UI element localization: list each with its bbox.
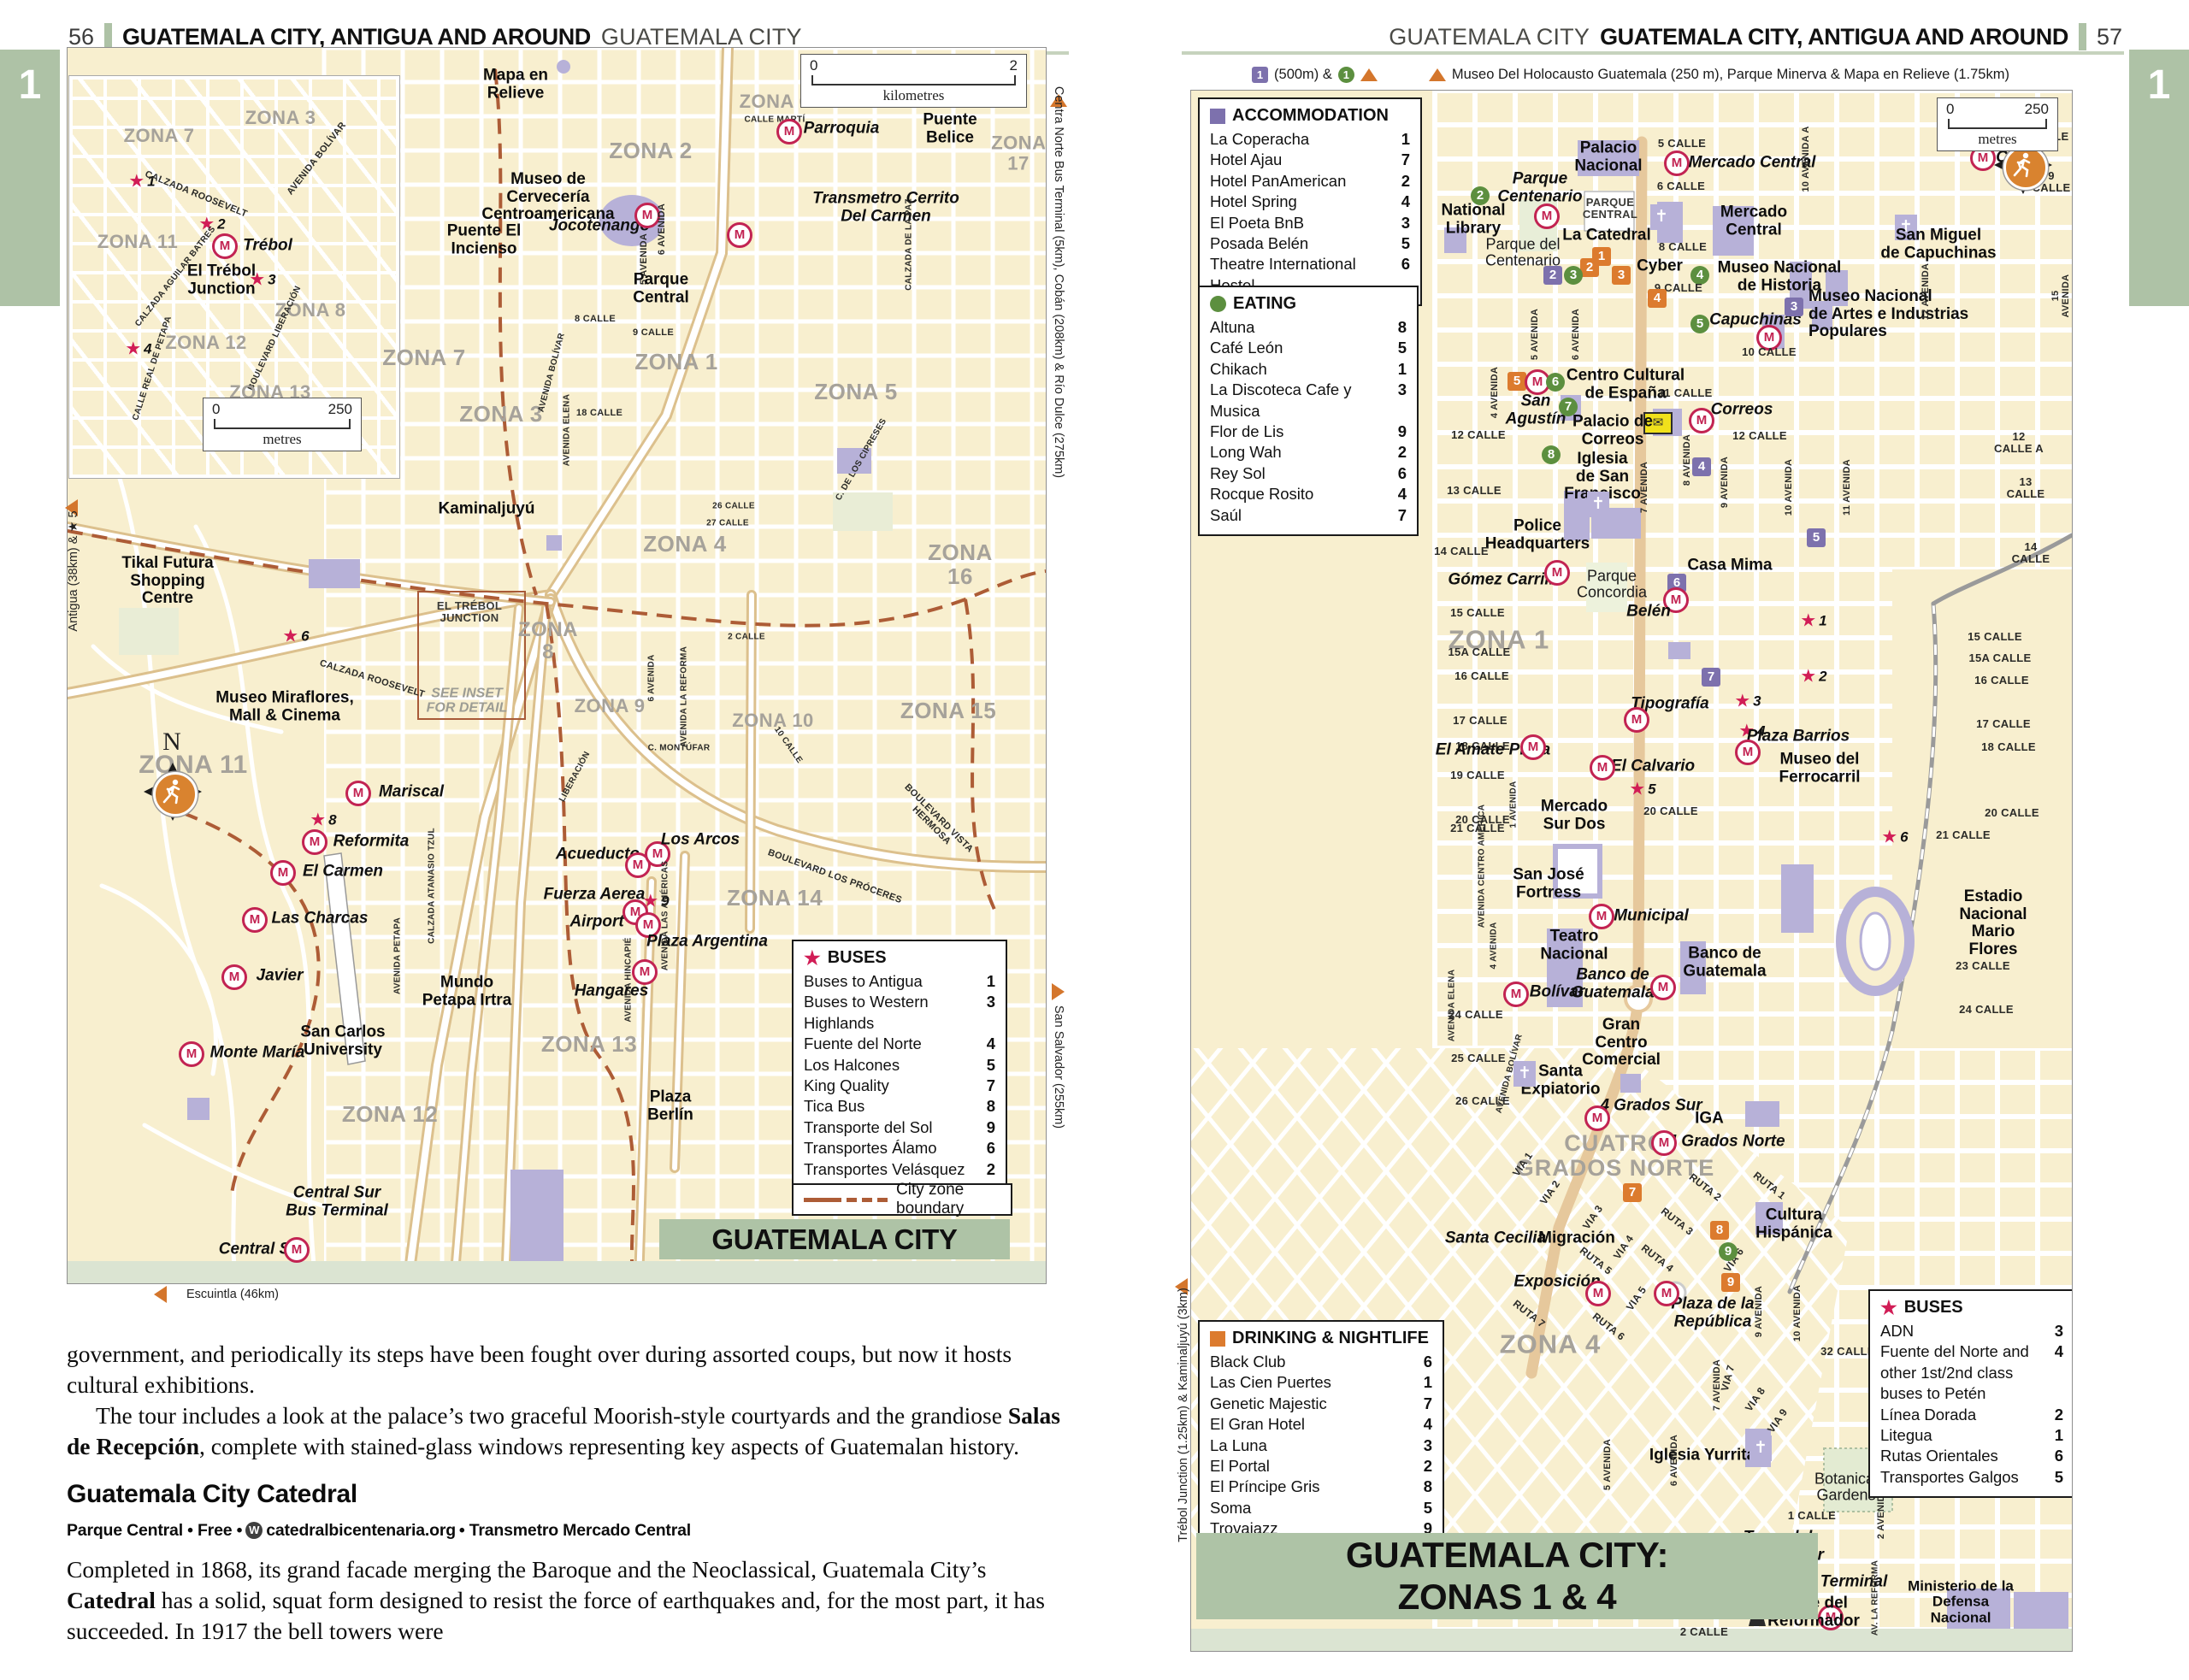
accommodation-number-badge: 5 — [1807, 528, 1826, 547]
legend-row: Hotel PanAmerican2 — [1210, 171, 1410, 192]
metro-station-icon: M — [302, 829, 327, 855]
map-label: AVENIDA CENTRO AMÉRICA — [1478, 805, 1488, 928]
map-label: Santa Cecilia — [1445, 1230, 1546, 1248]
map-label: Iglesia Yurrita — [1649, 1447, 1755, 1465]
map-label: San Agustín — [1506, 392, 1567, 427]
map-label: National Library — [1442, 202, 1506, 237]
metro-station-icon: M — [1589, 904, 1614, 929]
map-label: AV. LA REFORMA — [1872, 1560, 1881, 1636]
bus-star-icon: ★ — [1880, 1300, 1897, 1316]
map-label: AVENIDA ELENA — [1449, 970, 1458, 1041]
church-icon: ✝ — [1587, 492, 1609, 517]
metro-station-icon: M — [776, 119, 802, 144]
legend-row: Hotel Ajau7 — [1210, 150, 1410, 170]
metro-station-icon: M — [242, 907, 268, 933]
map-label: Gran Centro Comercial — [1582, 1017, 1661, 1070]
accommodation-number-badge: 2 — [1543, 266, 1562, 285]
map-label: ZONA 6 — [740, 91, 811, 112]
church-icon: ✝ — [1749, 1435, 1772, 1461]
map-title: GUATEMALA CITY — [659, 1219, 1010, 1259]
map-label: San José Fortress — [1513, 866, 1584, 901]
map-label: Parque Central — [633, 271, 688, 306]
map-label: 12 CALLE — [1732, 430, 1787, 442]
chapter-title: GUATEMALA CITY, ANTIGUA AND AROUND — [1600, 24, 2068, 50]
map-label: Mariscal — [379, 784, 444, 802]
map-label: Hangares — [575, 983, 649, 1001]
legend-row: La Luna3 — [1210, 1435, 1432, 1456]
website-icon: W — [245, 1522, 263, 1539]
boundary-line-sample — [804, 1198, 888, 1202]
eating-swatch-icon — [1210, 296, 1226, 312]
nightlife-number-badge: 2 — [1580, 258, 1599, 277]
buses-legend-list: Buses to Antigua1 Buses to Western Highl… — [804, 971, 995, 1180]
map-label: La Catedral — [1562, 227, 1650, 245]
chapter-tab-left: 1 — [0, 50, 60, 306]
metro-station-icon: M — [221, 964, 247, 990]
map-label: Las Charcas — [271, 911, 368, 928]
section-title: GUATEMALA CITY — [601, 24, 802, 50]
legend-row: Saúl7 — [1210, 505, 1407, 526]
map-label: Palacio de Correos — [1572, 413, 1653, 448]
map-label: 15 CALLE — [1450, 607, 1505, 619]
map-label: Mercado Sur Dos — [1541, 798, 1608, 833]
map-label: Central Sur Bus Terminal — [286, 1184, 388, 1219]
map-label: 7 AVENIDA — [1713, 1359, 1723, 1411]
legend-row: Tica Bus8 — [804, 1096, 995, 1117]
compass-icon — [149, 768, 197, 816]
buses-legend: ★BUSES ADN3 Fuente del Norte and other 1… — [1868, 1289, 2073, 1498]
legend-row: Buses to Antigua1 — [804, 971, 995, 992]
legend-row: Buses to Western Highlands3 — [804, 992, 995, 1034]
map-label: PARQUE CENTRAL — [1583, 197, 1637, 221]
nightlife-number-badge: 7 — [1623, 1183, 1642, 1202]
map-label: 11 CALLE — [1658, 387, 1712, 399]
bus-stop-star-icon: ★3 — [1734, 693, 1761, 712]
map-label: Plaza de la República — [1671, 1295, 1754, 1330]
eating-number-badge: 3 — [1564, 266, 1583, 285]
bus-stop-star-icon: ★2 — [1800, 668, 1826, 687]
map-label: IGA — [1695, 1111, 1724, 1129]
offmap-distance-label: San Salvador (255km) — [1052, 1005, 1065, 1129]
legend-row: Rocque Rosito4 — [1210, 484, 1407, 504]
map-label: Police Headquarters — [1485, 517, 1590, 552]
map-label: Parque del Centenario — [1485, 237, 1561, 270]
map-label: 17 CALLE — [1976, 718, 2031, 730]
map-label: Ministerio de la Defensa Nacional — [1905, 1578, 2016, 1625]
map-label: ZONA 14 — [727, 886, 823, 910]
map-label: 12 CALLE A — [1992, 431, 2045, 455]
header-accent-bar — [2079, 23, 2086, 50]
map-label: Reformita — [333, 834, 410, 852]
article-heading: Guatemala City Catedral — [67, 1479, 1081, 1510]
map-label: 4 Grados Norte — [1667, 1134, 1785, 1152]
map-label: 16 CALLE — [1974, 675, 2029, 687]
header-rule-right — [1182, 51, 2124, 55]
direction-arrow-icon — [1052, 983, 1065, 1000]
map-label: AVENIDA LA REFORMA — [681, 646, 690, 747]
drinking-list: Black Club6 Las Cien Puertes1 Genetic Ma… — [1210, 1352, 1432, 1540]
map-label: ZONA 3 — [245, 108, 316, 128]
legend-row: Transportes Galgos5 — [1880, 1467, 2063, 1488]
map-label: 6 AVENIDA — [1670, 1435, 1680, 1486]
inset-scale-bar: 0250 metres — [203, 398, 362, 451]
legend-row: La Coperacha1 — [1210, 129, 1410, 150]
metro-station-icon: M — [1534, 203, 1560, 229]
map-label: 15A CALLE — [1968, 652, 2031, 664]
nightlife-number-badge: 5 — [1508, 372, 1526, 391]
map-title: GUATEMALA CITY: ZONAS 1 & 4 — [1196, 1533, 1818, 1619]
map-label: Airport — [569, 914, 623, 932]
map-label: ZONA 7 — [124, 126, 195, 146]
legend-row: Chikach1 — [1210, 359, 1407, 380]
eating-number-badge: 5 — [1690, 315, 1709, 333]
metro-station-icon: M — [632, 959, 658, 985]
legend-row: Transporte del Sol9 — [804, 1117, 995, 1138]
metro-station-icon: M — [1520, 734, 1546, 760]
metro-station-icon: M — [212, 233, 238, 259]
map-label: 2 CALLE — [1680, 1626, 1728, 1638]
metro-station-icon: M — [1544, 560, 1570, 586]
bus-star-icon: ★ — [804, 951, 821, 966]
map-label: 23 CALLE — [1956, 960, 2010, 972]
map-bottom-strip — [1191, 1629, 2072, 1651]
map-label: San Carlos University — [300, 1023, 385, 1058]
map-label: 13 CALLE — [1447, 485, 1502, 497]
legend-row: Hotel Spring4 — [1210, 192, 1410, 212]
metro-station-icon: M — [284, 1237, 310, 1263]
map-label: ZONA 7 — [382, 345, 465, 369]
map-label: AVENIDA LAS AMÉRICAS — [662, 861, 671, 970]
map-label: Museo del Ferrocarril — [1779, 751, 1860, 786]
page-number: 57 — [2097, 24, 2122, 50]
metro-station-icon: M — [1503, 981, 1529, 1007]
accommodation-number-badge: 7 — [1702, 668, 1720, 687]
map-label: Belén — [1626, 604, 1671, 622]
metro-station-icon: M — [1654, 1281, 1679, 1306]
map-label: ZONA 9 — [575, 696, 646, 716]
map-scale-bar: 02 kilometres — [800, 54, 1027, 108]
map-label: 26 CALLE — [712, 503, 755, 512]
map-label: Javier — [257, 968, 304, 986]
article-text: government, and periodically its steps h… — [67, 1339, 1081, 1647]
map-label: 24 CALLE — [1449, 1009, 1503, 1021]
map-scale-bar: 0250 metres — [1937, 97, 2058, 151]
map-label: 5 AVENIDA — [1603, 1439, 1614, 1490]
map-label: 9 AVENIDA — [1755, 1286, 1765, 1337]
map-label: ZONA 2 — [609, 139, 692, 162]
legend-row: Genetic Majestic7 — [1210, 1394, 1432, 1414]
map-label: ZONA 8 — [518, 619, 578, 663]
map-label: Puente El Incienso — [447, 222, 522, 257]
nightlife-number-badge: 9 — [1721, 1273, 1740, 1292]
legend-row: Café León5 — [1210, 338, 1407, 358]
map-label: ZONA 4 — [643, 532, 726, 556]
legend-row: El Portal2 — [1210, 1456, 1432, 1477]
legend-row: El Gran Hotel4 — [1210, 1414, 1432, 1435]
bus-stop-star-icon: ★4 — [125, 340, 151, 360]
map-label: 6 AVENIDA — [658, 203, 668, 255]
accommodation-legend: ACCOMMODATION La Coperacha1 Hotel Ajau7 … — [1198, 97, 1422, 306]
map-label: 8 CALLE — [575, 315, 616, 325]
legend-row: Las Cien Puertes1 — [1210, 1372, 1432, 1393]
legend-row: Transportes Álamo6 — [804, 1138, 995, 1158]
map-label: ZONA 15 — [900, 699, 996, 722]
map-label: 14 CALLE — [2010, 541, 2051, 565]
map-label: 21 CALLE — [1936, 829, 1991, 841]
church-icon: ✝ — [1513, 1061, 1536, 1087]
listing-details: Parque Central • Free • W catedralbicent… — [67, 1515, 1081, 1546]
map-label: 4 AVENIDA — [1490, 923, 1500, 970]
legend-row: Flor de Lis9 — [1210, 421, 1407, 442]
map-label: Monte María — [210, 1045, 305, 1063]
accommodation-badge-icon: 1 — [1252, 67, 1268, 83]
drinking-swatch-icon — [1210, 1331, 1225, 1347]
map-label: 10 CALLE — [1742, 346, 1797, 358]
map-label: 24 CALLE — [1959, 1004, 2014, 1016]
map-label: AVENIDA HINCAPIÉ — [625, 937, 634, 1022]
metro-station-icon: M — [1650, 975, 1676, 1000]
paragraph: government, and periodically its steps h… — [67, 1339, 1081, 1400]
paragraph: The tour includes a look at the palace’s… — [67, 1400, 1081, 1462]
legend-row: Posada Belén5 — [1210, 233, 1410, 254]
eating-badge-icon: 1 — [1338, 67, 1354, 83]
map-label: 20 CALLE — [1985, 807, 2039, 819]
accommodation-number-badge: 4 — [1692, 457, 1711, 476]
map-label: 15 CALLE — [1968, 631, 2022, 643]
nightlife-number-badge: 3 — [1612, 266, 1631, 285]
metro-station-icon: M — [1590, 755, 1615, 781]
legend-row: Black Club6 — [1210, 1352, 1432, 1372]
paragraph: Completed in 1868, its grand facade merg… — [67, 1554, 1081, 1647]
map-label: ZONA 16 — [917, 540, 1003, 588]
map-label: Mundo Petapa Irtra — [422, 974, 512, 1009]
legend-row: Altuna8 — [1210, 317, 1407, 338]
map-label: 15A CALLE — [1448, 646, 1510, 658]
map-label: 7 AVENIDA — [1640, 462, 1650, 513]
map-label: ZONA 17 — [991, 133, 1046, 174]
metro-station-icon: M — [1585, 1281, 1611, 1306]
map-label: CALZADA ATANASIO TZUL — [428, 828, 438, 944]
legend-row: Transportes Velásquez2 — [804, 1159, 995, 1180]
map-label: 10 AVENIDA A — [1802, 126, 1812, 192]
direction-arrow-icon — [1360, 68, 1378, 81]
map-label: ZONA 13 — [541, 1032, 637, 1056]
map-label: 19 CALLE — [1450, 769, 1505, 781]
map-label: 12 AVENIDA — [1921, 263, 1932, 321]
eating-list: Altuna8 Café León5 Chikach1 La Discoteca… — [1210, 317, 1407, 526]
bus-stop-star-icon: ★6 — [282, 628, 309, 647]
map-label: Museo Miraflores, Mall & Cinema — [215, 689, 354, 724]
map-label: AVENIDA ELENA — [563, 394, 573, 466]
map-label: 9 AVENIDA — [1720, 457, 1731, 508]
map-label: Parque Concordia — [1577, 569, 1647, 602]
metro-station-icon: M — [1584, 1105, 1610, 1131]
map-label: Plaza Barrios — [1747, 728, 1850, 746]
metro-station-icon: M — [179, 1041, 204, 1067]
map-label: 32 CALLE — [1820, 1346, 1875, 1358]
bus-stop-star-icon: ★6 — [1881, 828, 1908, 848]
map-label: Puente Belice — [923, 111, 976, 146]
map-label: Trébol — [243, 238, 292, 256]
map-label: Mercado Central — [1689, 155, 1816, 173]
map-label: Tikal Futura Shopping Centre — [121, 555, 213, 608]
map-bottom-strip — [68, 1261, 1046, 1283]
map-label: 5 CALLE — [1658, 138, 1706, 150]
map-label: Mapa en Relieve — [483, 67, 548, 102]
nightlife-number-badge: 4 — [1648, 289, 1667, 308]
map-label: Palacio Nacional — [1574, 139, 1642, 174]
legend-row: ADN3 — [1880, 1321, 2063, 1341]
map-label: ZONA 3 — [459, 402, 542, 426]
page-header-right: GUATEMALA CITY GUATEMALA CITY, ANTIGUA A… — [1389, 22, 2122, 51]
map-label: 10 AVENIDA — [1793, 1285, 1803, 1342]
map-label: Bolívar — [1530, 984, 1584, 1002]
map-label: 15 AVENIDA — [2051, 274, 2072, 318]
map-label: Estadio Nacional Mario Flores — [1954, 888, 2033, 958]
eating-legend: EATING Altuna8 Café León5 Chikach1 La Di… — [1198, 286, 1419, 536]
map-label: 17 CALLE — [1453, 715, 1508, 727]
metro-station-icon: M — [1735, 740, 1761, 765]
map-label: 4 Grados Sur — [1600, 1098, 1702, 1116]
eating-number-badge: 6 — [1546, 373, 1565, 392]
legend-row: El Príncipe Gris8 — [1210, 1477, 1432, 1497]
metro-station-icon: M — [270, 860, 296, 886]
map-label: Los Arcos — [661, 832, 740, 850]
map-label: 9 CALLE — [633, 328, 674, 339]
map-label: Correos — [1711, 402, 1773, 420]
map-label: ZONA 12 — [342, 1102, 438, 1126]
map-label: El Carmen — [303, 864, 383, 881]
map-label: ZONA 12 — [165, 333, 247, 353]
map-label: Parroquia — [804, 121, 880, 139]
buses-list: ADN3 Fuente del Norte and other 1st/2nd … — [1880, 1321, 2063, 1488]
map-label: Migración — [1538, 1230, 1615, 1248]
legend-row: Fuente del Norte and other 1st/2nd class… — [1880, 1341, 2063, 1404]
map-label: 1 CALLE — [1788, 1510, 1836, 1522]
map-label: ZONA 10 — [732, 710, 814, 731]
legend-row: Línea Dorada2 — [1880, 1405, 2063, 1425]
map-label: Cultura Hispánica — [1755, 1206, 1832, 1241]
poi-dot-icon — [557, 60, 570, 74]
map-label: 20 CALLE — [1643, 805, 1698, 817]
direction-arrow-icon — [1429, 68, 1446, 81]
map-label: 5 AVENIDA — [1531, 309, 1541, 360]
bus-stop-star-icon: ★8 — [310, 811, 336, 831]
map-label: 13 CALLE — [2003, 476, 2049, 500]
map-label: Casa Mima — [1687, 557, 1772, 575]
map-label: Banco de Guatemala — [1683, 945, 1766, 980]
legend-row: Rey Sol6 — [1210, 463, 1407, 484]
offmap-distance-label: Trébol Junction (1.25km) & Kaminaljuyú (… — [1177, 1288, 1190, 1542]
legend-row: Litegua1 — [1880, 1425, 2063, 1446]
legend-row: King Quality7 — [804, 1076, 995, 1096]
map-label: ZONA 11 — [97, 232, 178, 252]
map-label: Mercado Central — [1720, 203, 1787, 239]
runner-icon — [2011, 152, 2035, 178]
map-label: ZONA 4 — [1500, 1329, 1602, 1358]
map-label: 6 AVENIDA — [648, 655, 658, 702]
map-label: 8 CALLE — [1659, 241, 1707, 253]
metro-station-icon: M — [345, 781, 371, 806]
page-number: 56 — [68, 24, 94, 50]
map-label: Cyber — [1637, 258, 1683, 276]
bus-stop-star-icon: ★5 — [1629, 781, 1655, 800]
church-icon: ✝ — [1650, 204, 1673, 230]
map-label: 2 CALLE — [728, 634, 765, 643]
runner-icon — [161, 779, 185, 805]
legend-row: Rutas Orientales6 — [1880, 1446, 2063, 1466]
map-label: AVENIDA PETAPA — [394, 917, 404, 994]
accommodation-swatch-icon — [1210, 109, 1225, 124]
map-label: 18 CALLE — [576, 409, 622, 419]
map-label: Municipal — [1614, 908, 1689, 926]
map-label: El Trébol Junction — [187, 262, 256, 298]
legend-row: La Discoteca Cafe y Musica3 — [1210, 380, 1407, 421]
map-label: SEE INSET FOR DETAIL — [427, 687, 508, 716]
map-label: 6 CALLE — [1657, 180, 1705, 192]
metro-station-icon: M — [727, 222, 752, 248]
metro-station-icon: M — [1664, 150, 1690, 176]
map-label: 18 CALLE — [1981, 741, 2036, 753]
map-label: Transmetro Cerrito Del Carmen — [812, 190, 959, 225]
offmap-note: 1 (500m) & 1 Museo Del Holocausto Guatem… — [1190, 67, 2071, 83]
offmap-distance-label: Centra Norte Bus Terminal (5km), Cobán (… — [1052, 86, 1065, 478]
map-label: 27 CALLE — [706, 520, 749, 529]
zonas-1-4-map: 0250 metres ACCOMMODATION La Coperacha1 … — [1190, 90, 2073, 1652]
bus-stop-star-icon: ★1 — [1800, 612, 1826, 632]
legend-row: Fuente del Norte4 — [804, 1034, 995, 1054]
eating-number-badge: 8 — [1542, 445, 1561, 464]
map-label: EL TRÉBOL JUNCTION — [437, 600, 502, 624]
metro-station-icon: M — [1651, 1130, 1677, 1156]
chapter-title: GUATEMALA CITY, ANTIGUA AND AROUND — [122, 24, 591, 50]
section-title: GUATEMALA CITY — [1389, 24, 1590, 50]
guatemala-city-map: 0250 metres 02 kilometres ★BUSES Buses t… — [67, 47, 1047, 1284]
map-label: Museo Nacional de Artes e Industrias Pop… — [1808, 288, 1968, 341]
direction-arrow-icon — [154, 1286, 167, 1303]
bus-stop-star-icon: ★3 — [249, 271, 275, 291]
legend-row: El Poeta BnB3 — [1210, 213, 1410, 233]
map-label: CALZADA DE LA PAZ — [906, 198, 915, 291]
map-label: 4 AVENIDA — [1490, 367, 1501, 418]
map-label: Kaminaljuyú — [439, 501, 535, 519]
map-label: 16 CALLE — [1454, 670, 1509, 682]
map-label: San Miguel de Capuchinas — [1880, 227, 1996, 262]
website-url: catedralbicentenaria.org — [266, 1515, 456, 1546]
map-label: Parque Centenario — [1497, 170, 1582, 205]
map-label: 14 CALLE — [1434, 545, 1489, 557]
accommodation-list: La Coperacha1 Hotel Ajau7 Hotel PanAmeri… — [1210, 129, 1410, 296]
eating-number-badge: 9 — [1719, 1242, 1738, 1261]
map-label: 10 AVENIDA — [1785, 459, 1795, 516]
nightlife-number-badge: 8 — [1710, 1221, 1729, 1240]
map-label: N — [162, 728, 181, 756]
map-label: 12 CALLE — [1451, 429, 1506, 441]
map-label: ZONA 5 — [814, 380, 897, 404]
zone-boundary-legend: City zone boundary — [792, 1183, 1012, 1216]
chapter-tab-right: 1 — [2129, 50, 2189, 306]
drinking-nightlife-legend: DRINKING & NIGHTLIFE Black Club6 Las Cie… — [1198, 1320, 1444, 1550]
legend-row: Long Wah2 — [1210, 442, 1407, 463]
map-label: 11 AVENIDA — [1843, 459, 1853, 516]
buses-legend: ★BUSES Buses to Antigua1 Buses to Wester… — [792, 940, 1007, 1190]
map-label: ZONA 1 — [634, 350, 717, 374]
metro-station-icon: M — [1624, 707, 1649, 733]
map-label: 1 AVENIDA — [1510, 781, 1519, 828]
map-label: Museo de Cervecería Centroamericana — [481, 171, 614, 224]
legend-row: Soma5 — [1210, 1498, 1432, 1518]
map-label: El Calvario — [1611, 758, 1695, 776]
